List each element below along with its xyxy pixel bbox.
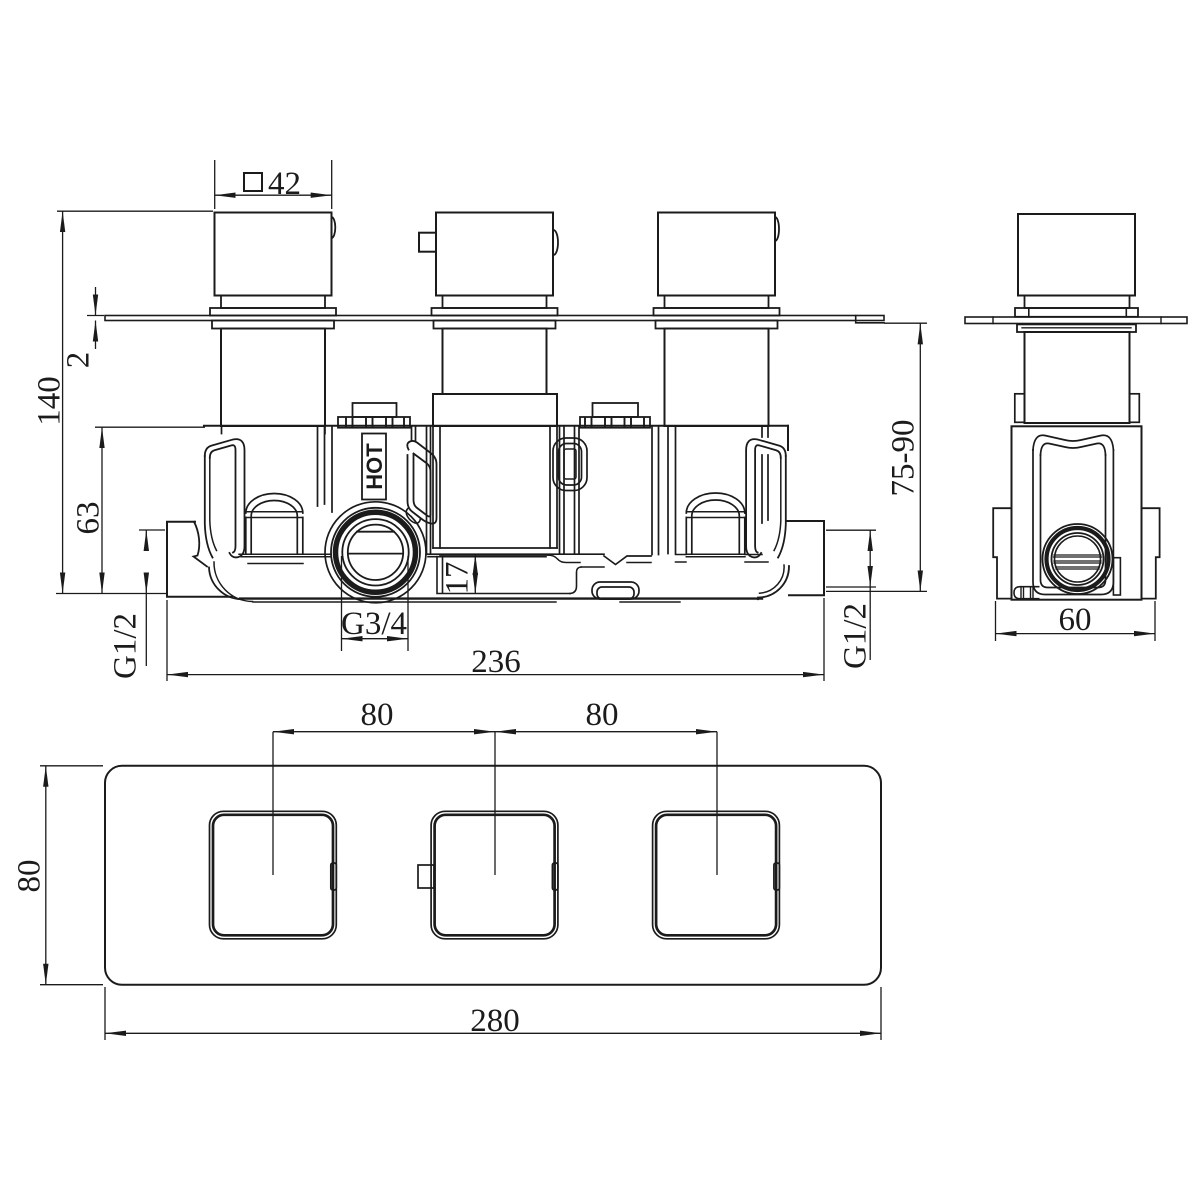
svg-text:17: 17 bbox=[440, 562, 476, 595]
svg-text:63: 63 bbox=[71, 502, 107, 535]
svg-text:2: 2 bbox=[61, 352, 97, 369]
svg-text:80: 80 bbox=[12, 860, 48, 893]
svg-text:HOT: HOT bbox=[362, 443, 387, 490]
svg-text:80: 80 bbox=[586, 697, 619, 733]
svg-text:60: 60 bbox=[1059, 602, 1092, 638]
svg-text:236: 236 bbox=[471, 644, 521, 680]
svg-text:80: 80 bbox=[361, 697, 394, 733]
svg-text:75-90: 75-90 bbox=[886, 420, 922, 497]
svg-text:140: 140 bbox=[32, 376, 68, 426]
svg-text:280: 280 bbox=[470, 1003, 520, 1039]
svg-text:G1/2: G1/2 bbox=[108, 613, 144, 679]
svg-text:G3/4: G3/4 bbox=[341, 606, 407, 642]
svg-text:G1/2: G1/2 bbox=[838, 603, 874, 669]
svg-text:42: 42 bbox=[268, 166, 301, 202]
